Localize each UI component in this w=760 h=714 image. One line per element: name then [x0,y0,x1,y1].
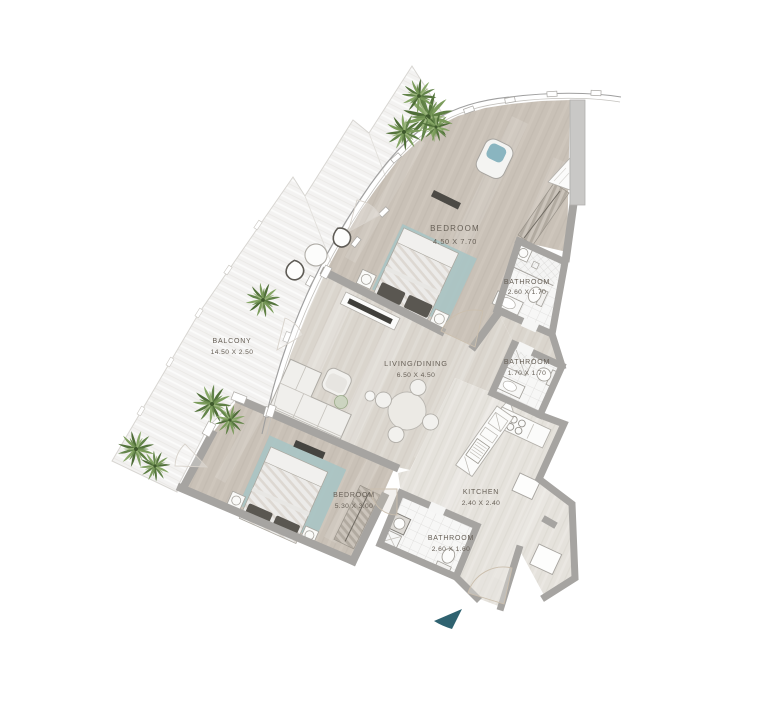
svg-text:5.30 X 3.00: 5.30 X 3.00 [335,503,374,510]
svg-text:BATHROOM: BATHROOM [504,359,550,366]
svg-text:2.60 X 1.70: 2.60 X 1.70 [508,289,547,296]
svg-text:BEDROOM: BEDROOM [430,224,480,233]
svg-text:2.40 X 2.40: 2.40 X 2.40 [462,500,501,507]
svg-text:BATHROOM: BATHROOM [504,279,550,286]
svg-text:LIVING/DINING: LIVING/DINING [384,359,448,368]
svg-text:KITCHEN: KITCHEN [463,489,499,496]
svg-text:6.50 X 4.50: 6.50 X 4.50 [397,372,436,379]
svg-text:BATHROOM: BATHROOM [428,535,474,542]
svg-text:BALCONY: BALCONY [212,338,251,345]
svg-text:14.50 X 2.50: 14.50 X 2.50 [211,349,254,356]
svg-text:1.70 X 1.70: 1.70 X 1.70 [508,370,547,377]
svg-text:2.60 X 1.60: 2.60 X 1.60 [432,546,471,553]
svg-text:BEDROOM: BEDROOM [333,492,375,499]
svg-text:4.50 X 7.70: 4.50 X 7.70 [433,237,477,246]
